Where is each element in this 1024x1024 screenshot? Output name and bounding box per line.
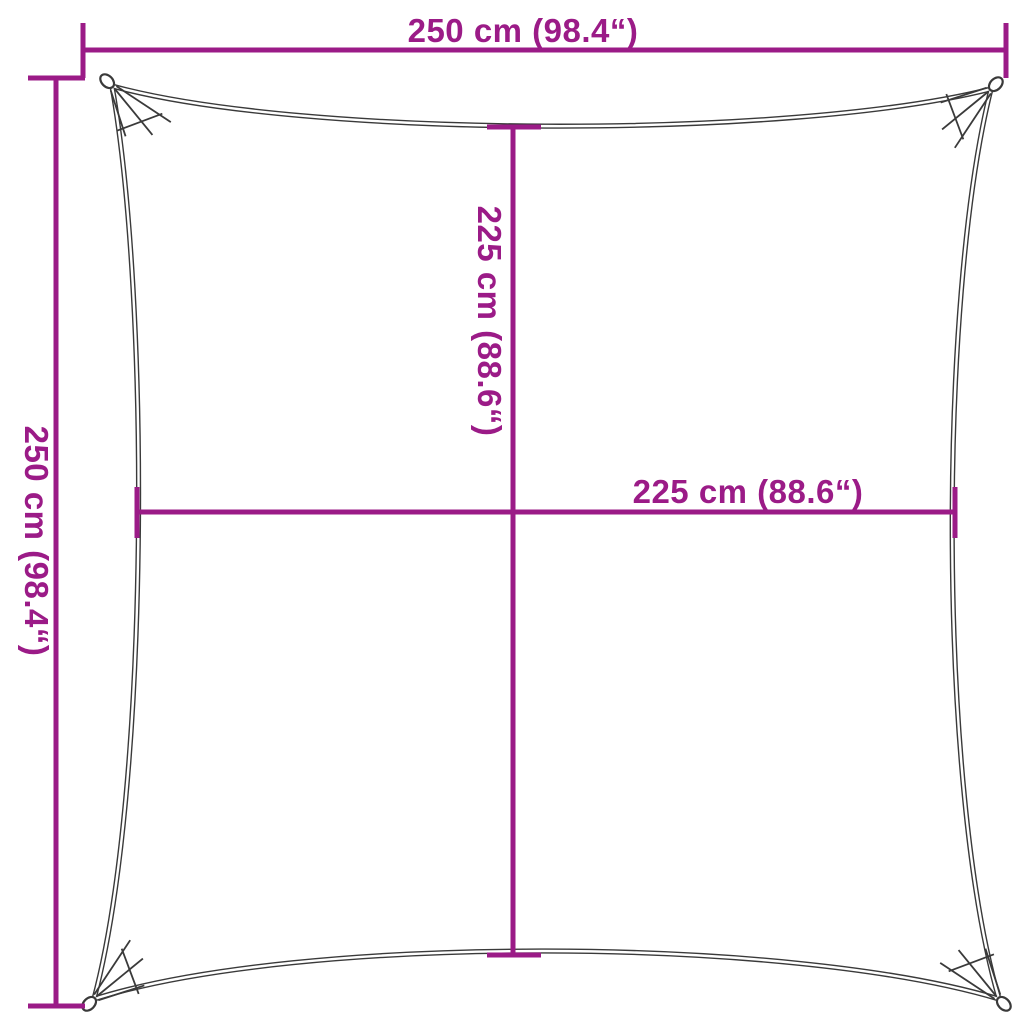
dimension-diagram: 250 cm (98.4“) 250 cm (98.4“) 225 cm (88… <box>0 0 1024 1024</box>
sail <box>72 59 1024 1024</box>
dim-label-inner-vertical: 225 cm (88.6“) <box>471 206 508 437</box>
dim-label-inner-horizontal: 225 cm (88.6“) <box>633 473 864 510</box>
dim-label-top: 250 cm (98.4“) <box>408 12 639 49</box>
sail-outline <box>94 86 999 999</box>
dim-label-left: 250 cm (98.4“) <box>18 426 55 657</box>
diagram-canvas: 250 cm (98.4“) 250 cm (98.4“) 225 cm (88… <box>0 0 1024 1024</box>
